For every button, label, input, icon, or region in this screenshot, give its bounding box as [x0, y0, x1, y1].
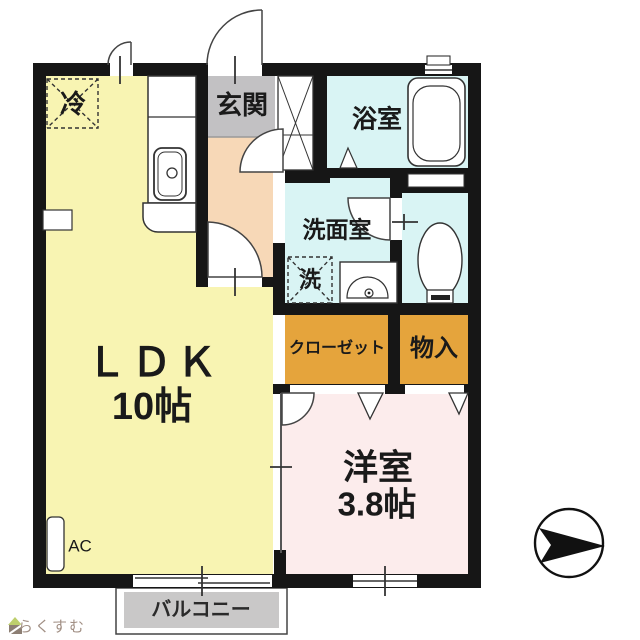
refrigerator-label: 冷 — [60, 91, 86, 117]
western-room-name-label: 洋室 — [343, 451, 413, 486]
wall-entrance-bath — [313, 76, 327, 183]
ldk-name-label: ＬＤＫ — [87, 343, 222, 383]
washroom-door-opening — [273, 172, 285, 243]
compass-icon — [535, 509, 605, 577]
floor-plan-drawing — [0, 0, 640, 640]
toilet-window — [408, 174, 464, 187]
wall-washroom-toilet-top — [390, 178, 402, 198]
wall-ldk-western-stub — [274, 550, 286, 574]
bath-window-outer — [427, 56, 450, 65]
ac-unit-icon — [47, 517, 64, 571]
closet-label: クローゼット — [289, 341, 385, 357]
bathroom-label: 浴室 — [352, 108, 402, 133]
entrance-label: 玄関 — [216, 92, 268, 118]
sink-drain-icon — [167, 168, 177, 178]
bathtub-icon — [408, 78, 465, 166]
wall-closet-storage — [388, 315, 400, 384]
balcony-label: バルコニー — [151, 600, 251, 620]
washroom-label: 洗面室 — [303, 219, 372, 242]
ldk-size-label: 10帖 — [112, 388, 192, 426]
wall-washroom-closet — [273, 303, 468, 315]
wall-hall-washroom — [273, 243, 285, 303]
storage-label: 物入 — [410, 337, 458, 361]
wall-kitchen-hall — [196, 63, 208, 287]
wall-right — [468, 63, 481, 588]
wall-niche — [43, 210, 72, 230]
toilet-door-opening — [390, 198, 402, 240]
western-room-size-label: 3.8帖 — [338, 488, 417, 521]
floor-plan: 冷 玄関 浴室 洗面室 洗 クローゼット 物入 ＬＤＫ 10帖 洋室 3.8帖 … — [0, 0, 640, 640]
wall-hall-ldk-left — [196, 277, 208, 287]
washbasin-icon — [340, 262, 397, 303]
kitchen-door-opening — [110, 63, 133, 76]
wall-bath-washroom — [327, 168, 402, 178]
kitchen-counter-end — [143, 203, 196, 232]
washer-label: 洗 — [299, 269, 321, 291]
site-logo-text: らくすむ — [18, 620, 86, 635]
ac-label: AC — [68, 538, 92, 555]
wall-left — [33, 63, 46, 588]
